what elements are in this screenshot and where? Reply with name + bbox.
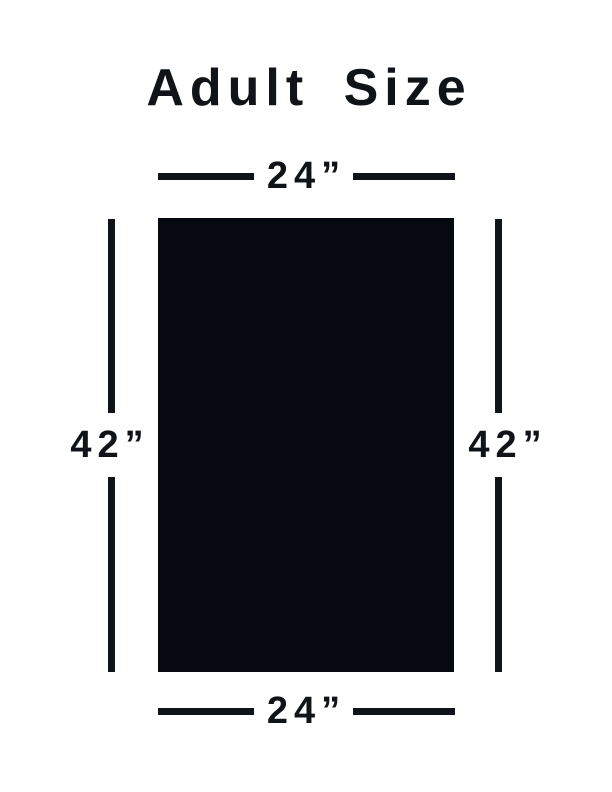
- diagram-title: Adult Size: [0, 63, 612, 113]
- top-dimension-line-right: [353, 173, 455, 180]
- top-dimension: 24”: [158, 158, 455, 195]
- bottom-dimension-line-left: [158, 708, 254, 715]
- right-dimension-label: 42”: [468, 424, 547, 467]
- size-diagram: Adult Size 24” 42” 42” 24”: [0, 0, 612, 792]
- bottom-dimension: 24”: [158, 693, 455, 730]
- size-rectangle: [158, 218, 454, 672]
- left-dimension-label-box: 42”: [62, 413, 154, 477]
- top-dimension-line-left: [158, 173, 254, 180]
- top-dimension-label: 24”: [254, 155, 353, 198]
- right-dimension-label-box: 42”: [460, 413, 552, 477]
- bottom-dimension-line-right: [353, 708, 455, 715]
- bottom-dimension-label: 24”: [254, 690, 353, 733]
- left-dimension-label: 42”: [70, 424, 149, 467]
